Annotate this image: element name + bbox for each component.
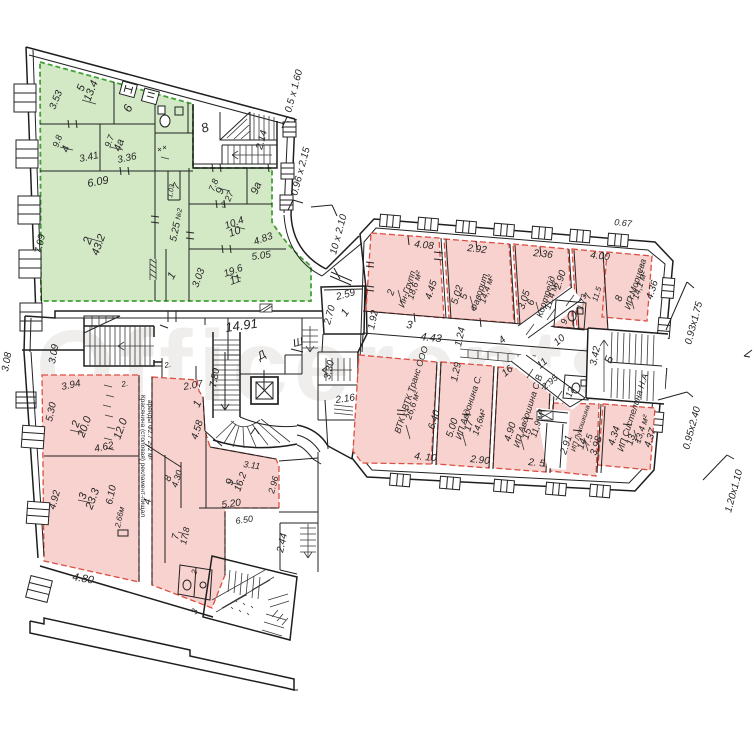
svg-text:аренды Ф2.7 292 м²: аренды Ф2.7 292 м²: [146, 400, 153, 461]
svg-text:2.90: 2.90: [469, 454, 491, 467]
svg-text:Красянина (столовая) рекламент: Красянина (столовая) рекламент-пищал: [139, 395, 146, 517]
svg-text:2.36: 2.36: [532, 248, 554, 261]
svg-text:4.43: 4.43: [420, 331, 443, 345]
svg-text:0.67: 0.67: [614, 217, 633, 229]
svg-text:2. 5: 2. 5: [527, 457, 546, 470]
svg-text:4.08: 4.08: [414, 239, 435, 252]
svg-text:2.92: 2.92: [466, 243, 488, 256]
svg-text:4.00: 4.00: [590, 250, 611, 263]
